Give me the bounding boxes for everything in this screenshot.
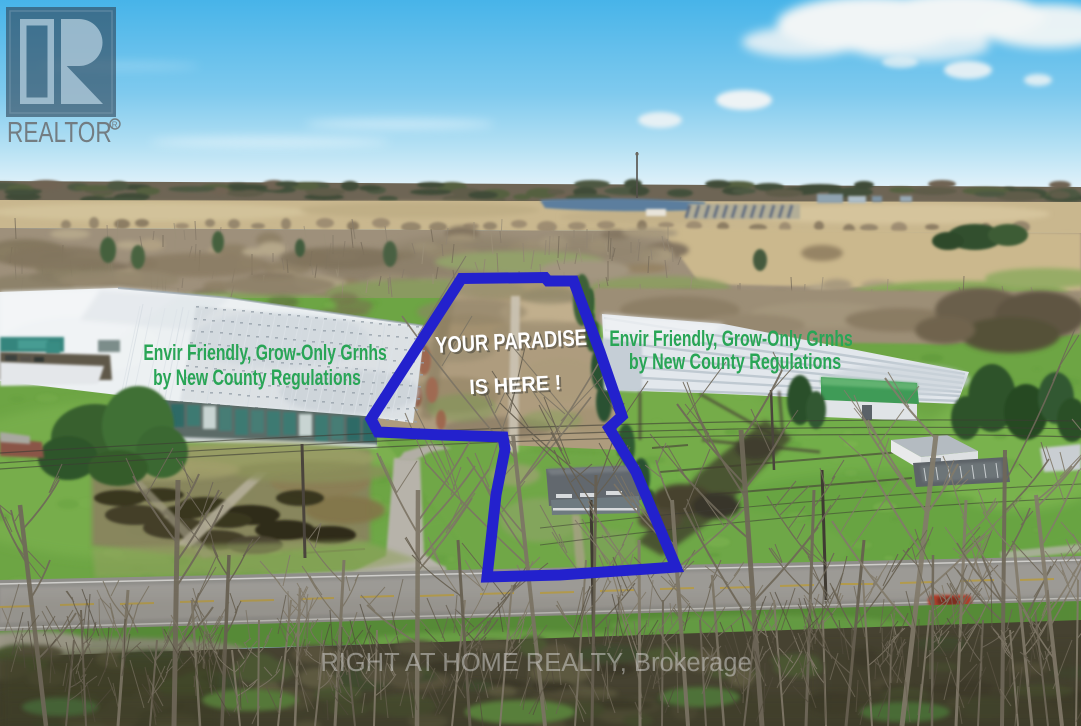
svg-text:Envir Friendly, Grow-Only Grnh: Envir Friendly, Grow-Only Grnhs [143,342,386,366]
svg-text:by New County Regulations: by New County Regulations [629,351,841,375]
svg-text:IS HERE !: IS HERE ! [469,371,562,399]
svg-text:R: R [112,121,118,130]
svg-text:Envir Friendly, Grow-Only Grnh: Envir Friendly, Grow-Only Grnhs [609,328,852,352]
svg-text:REALTOR: REALTOR [7,115,112,148]
svg-text:by New County Regulations: by New County Regulations [153,367,361,391]
svg-text:RIGHT AT HOME REALTY, Brokera: RIGHT AT HOME REALTY, Brokerage [320,649,751,677]
